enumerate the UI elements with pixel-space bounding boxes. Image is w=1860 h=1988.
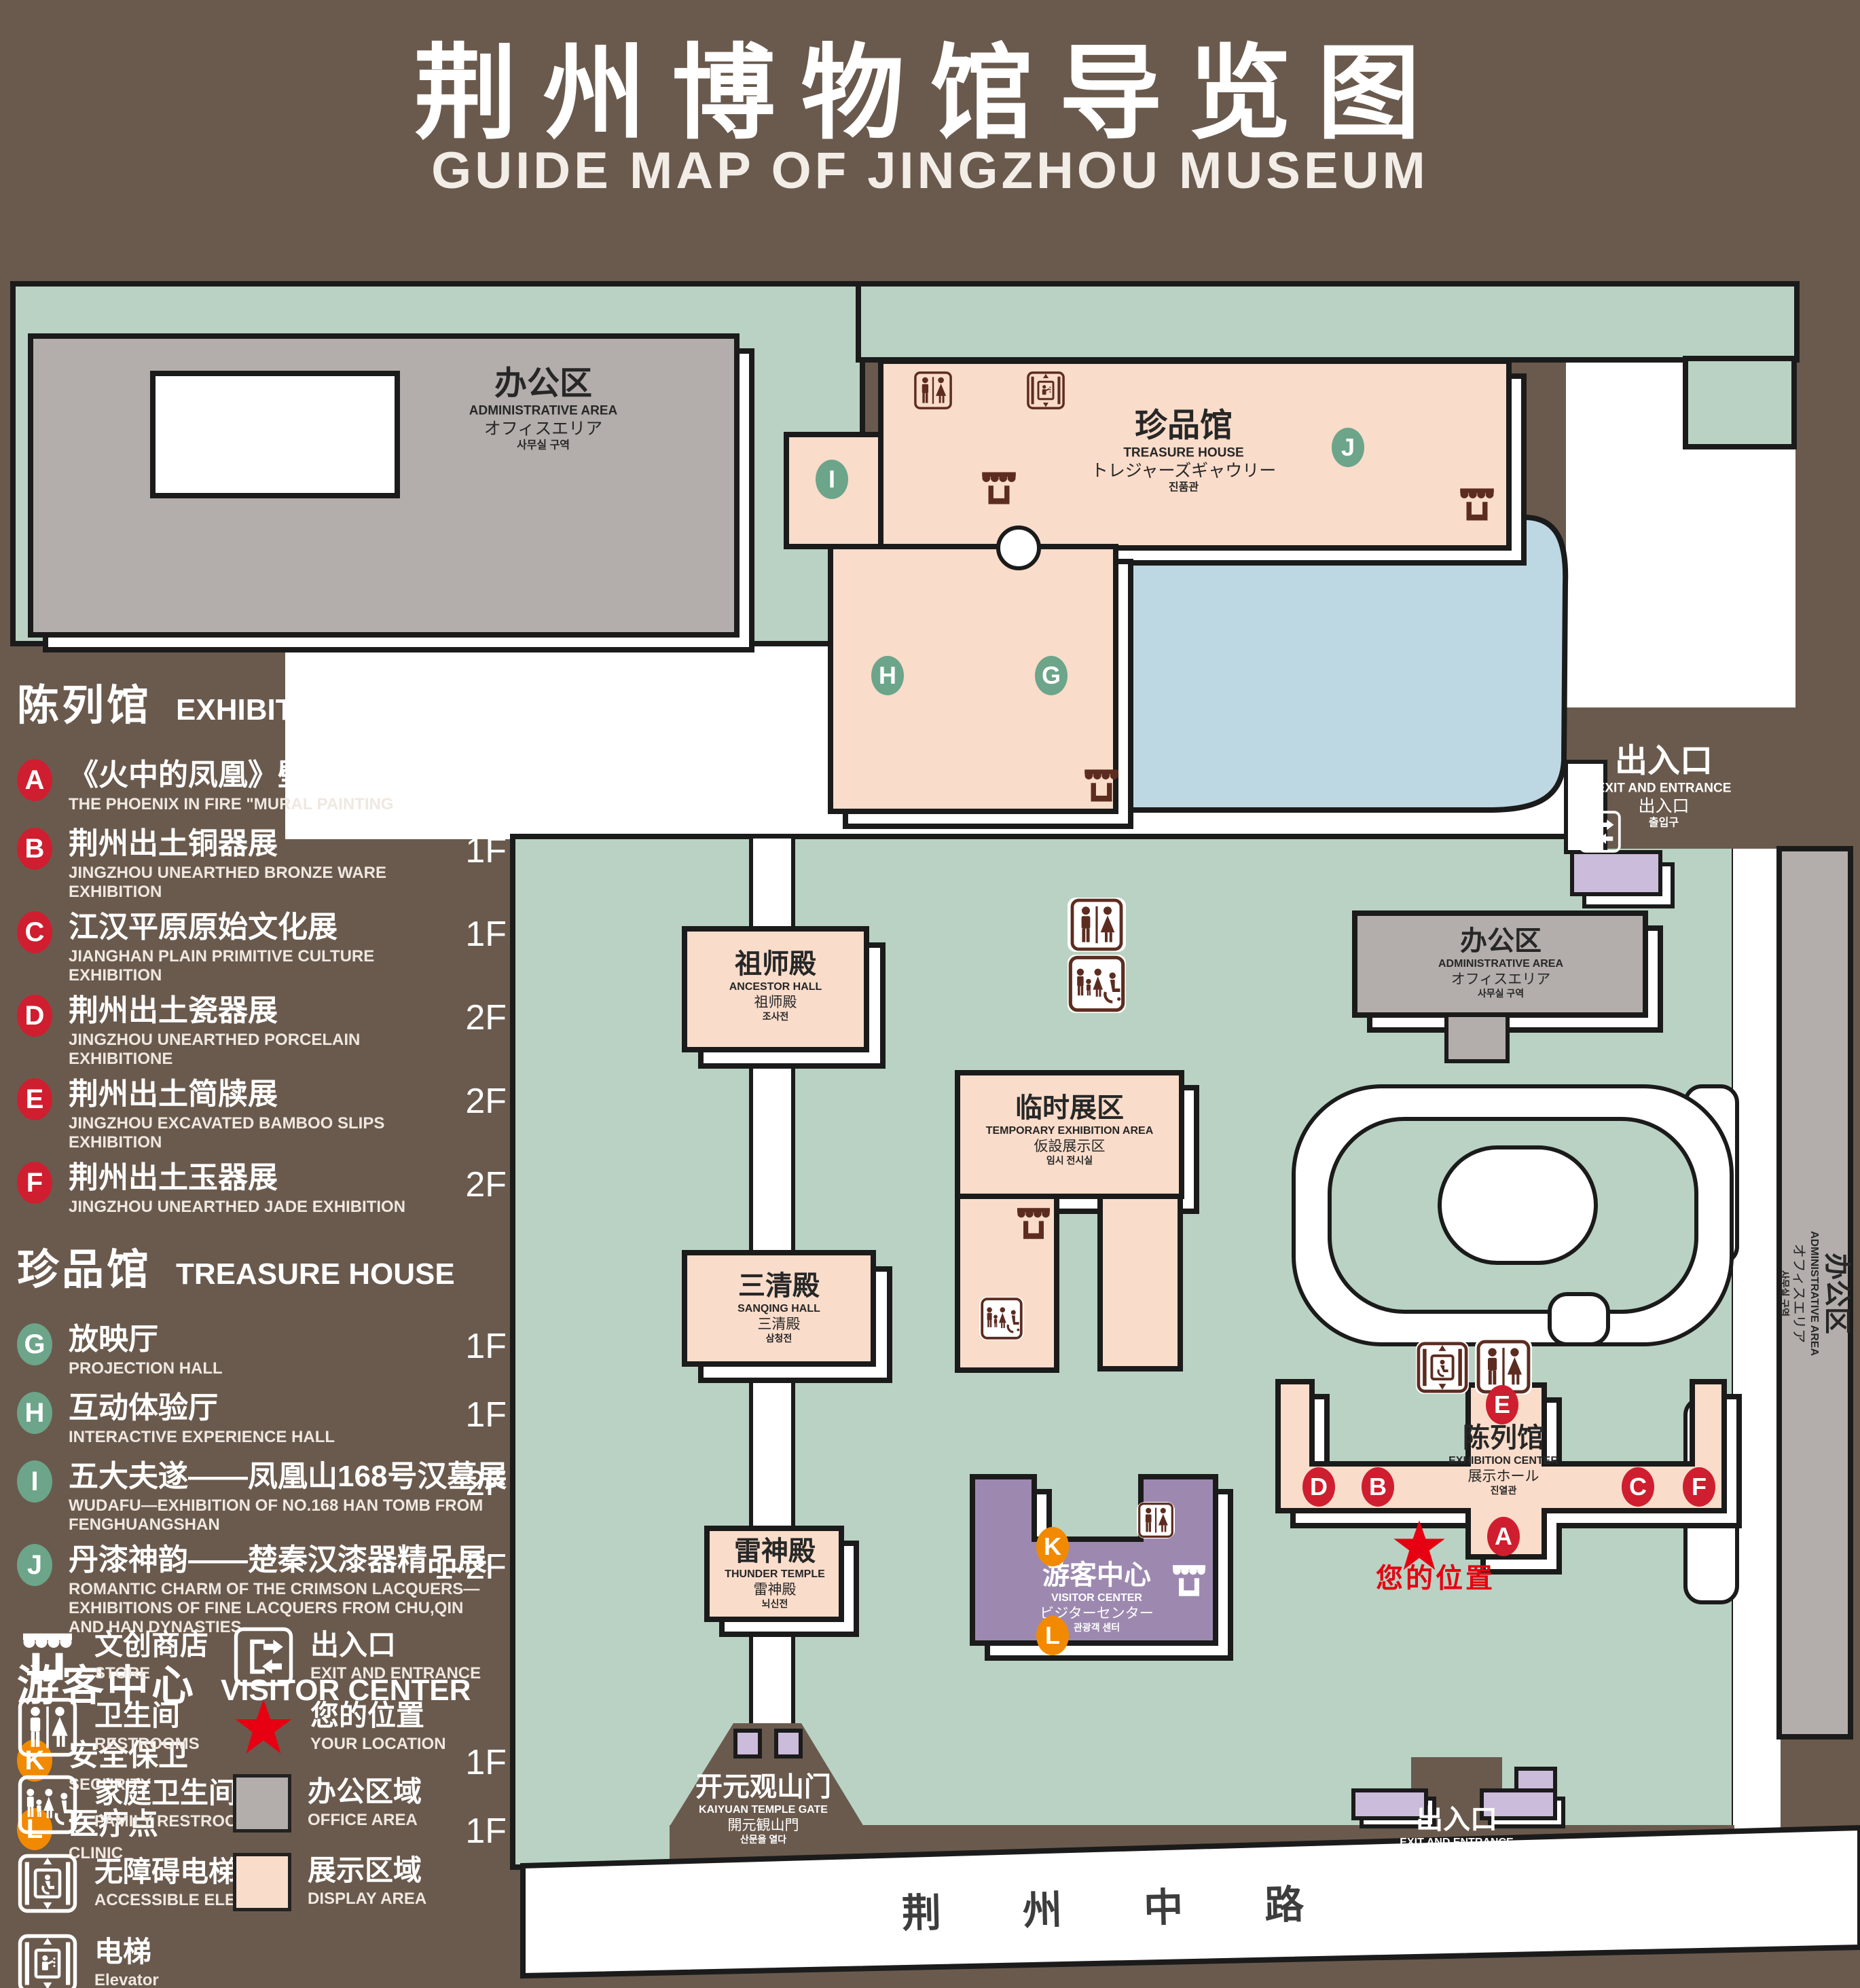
legend-item-floor: 1F [465, 830, 507, 871]
legend-item-text: 放映厅PROJECTION HALL [69, 1322, 223, 1378]
label-zh: 三清殿 [737, 1271, 820, 1302]
legend-section-title-zh: 珍品馆 [17, 1247, 151, 1293]
label-en: SANQING HALL [737, 1303, 820, 1315]
legend-symbol-en: STORE [94, 1664, 208, 1683]
legend-item-en: INTERACTIVE EXPERIENCE HALL [69, 1428, 335, 1447]
legend-symbol-text: 出入口EXIT AND ENTRANCE [310, 1630, 481, 1682]
legend-item-text: 荆州出土玉器展JINGZHOU UNEARTHED JADE EXHIBITIO… [69, 1160, 405, 1217]
legend-symbols: 文创商店STORE卫生间RESTROOMS家庭卫生间FAMILY RESTROO… [17, 1626, 519, 1988]
restroom-icon [913, 371, 953, 410]
map-label-treasure-house: 珍品馆 TREASURE HOUSE トレジャーズギャウリー 진품관 [1091, 407, 1277, 496]
admin-mid-leg [1446, 1015, 1508, 1061]
restroom-icon [1137, 1502, 1175, 1539]
accessible-elevator-icon [17, 1853, 78, 1914]
legend-symbol-zh: 文创商店 [94, 1630, 208, 1660]
label-en: ADMINISTRATIVE AREA [1808, 1231, 1820, 1356]
map-badge-k: K [1036, 1527, 1069, 1566]
legend-item-zh: 互动体验厅 [69, 1391, 335, 1426]
label-en: ADMINISTRATIVE AREA [1438, 958, 1563, 970]
label-ko: 임시 전시실 [986, 1156, 1154, 1166]
legend-item-floor: 1F [465, 762, 507, 803]
legend-symbol-swatch-office: 办公区域OFFICE AREA [233, 1774, 422, 1833]
legend-symbol-en: RESTROOMS [94, 1735, 200, 1754]
map-label-admin-east: 办公区 ADMINISTRATIVE AREA オフィスエリア 사무실 구역 [1777, 1231, 1853, 1356]
legend-section-title-en: EXHIBITION CENTER [176, 693, 478, 726]
garden-pond-small [1440, 1147, 1596, 1263]
label-ja: トレジャーズギャウリー [1091, 462, 1277, 481]
legend-item-zh: 丹漆神韵——楚秦汉漆器精品展 [69, 1543, 487, 1578]
east-road [1733, 847, 1781, 1867]
label-zh: 雷神殿 [725, 1536, 825, 1567]
store-icon [1169, 1560, 1209, 1601]
legend-item: C江汉平原原始文化展JIANGHAN PLAIN PRIMITIVE CULTU… [17, 910, 516, 984]
elevator-icon [1026, 371, 1065, 410]
label-en: EXIT AND ENTRANCE [1597, 781, 1732, 795]
map-badge-g: G [1035, 656, 1068, 695]
legend-item-zh: 江汉平原原始文化展 [69, 910, 440, 945]
label-ko: 진품관 [1091, 482, 1277, 494]
legend-item-text: 《火中的凤凰》壁画THE PHOENIX IN FIRE "MURAL PAIN… [69, 758, 394, 814]
label-ja: 三清殿 [737, 1317, 820, 1333]
legend-item-en: JINGZHOU UNEARTHED BRONZE WARE EXHIBITIO… [69, 864, 440, 901]
label-en: ADMINISTRATIVE AREA [469, 403, 618, 418]
label-ja: オフィスエリア [469, 420, 618, 439]
legend-item-floor: 1F [465, 1395, 507, 1435]
legend-item-badge: A [17, 759, 52, 801]
legend-item-en: THE PHOENIX IN FIRE "MURAL PAINTING [69, 795, 394, 814]
label-en: KAIYUAN TEMPLE GATE [695, 1804, 831, 1816]
legend-item: D荆州出土瓷器展JINGZHOU UNEARTHED PORCELAIN EXH… [17, 993, 516, 1068]
label-zh: 出入口 [1400, 1805, 1513, 1835]
label-ko: 진열관 [1448, 1486, 1558, 1496]
legend-item: H互动体验厅INTERACTIVE EXPERIENCE HALL1F [17, 1391, 516, 1450]
label-zh: 开元观山门 [695, 1772, 831, 1803]
legend-symbol-text: 电梯Elevator [94, 1937, 159, 1988]
legend-item-text: 五大夫遂——凤凰山168号汉墓展WUDAFU—EXHIBITION OF NO.… [69, 1459, 507, 1534]
legend-item-en: PROJECTION HALL [69, 1359, 223, 1378]
label-en: ANCESTOR HALL [729, 981, 822, 993]
legend-symbol-en: DISPLAY AREA [308, 1890, 426, 1909]
map-badge-f: F [1683, 1467, 1715, 1507]
legend-symbol-text: 卫生间RESTROOMS [94, 1701, 200, 1753]
label-ja: 展示ホール [1448, 1469, 1558, 1485]
store-icon [1013, 1203, 1054, 1244]
legend-item-floor: 2F [465, 1081, 507, 1122]
legend-item-zh: 《火中的凤凰》壁画 [69, 758, 394, 793]
office-area-swatch [233, 1774, 291, 1833]
label-ko: 산문을 열다 [695, 1835, 831, 1845]
label-en: THUNDER TEMPLE [725, 1568, 825, 1581]
map-label-temporary-area: 临时展区 TEMPORARY EXHIBITION AREA 仮設展示区 임시 … [986, 1092, 1154, 1168]
legend-symbol-zh: 展示区域 [308, 1856, 426, 1885]
legend-symbol-restroom: 卫生间RESTROOMS [17, 1697, 200, 1758]
legend-section-header: 珍品馆TREASURE HOUSE [17, 1235, 516, 1296]
display-area-swatch [233, 1853, 291, 1911]
map-label-sanqing-hall: 三清殿 SANQING HALL 三清殿 삼청전 [737, 1270, 820, 1346]
legend-section: 陈列馆EXHIBITION CENTERA《火中的凤凰》壁画THE PHOENI… [17, 671, 516, 1220]
legend-item-badge: D [17, 995, 52, 1037]
legend-symbol-zh: 您的位置 [310, 1701, 446, 1731]
label-zh: 临时展区 [986, 1093, 1154, 1124]
gate-building-east [776, 1731, 801, 1756]
legend-item-en: WUDAFU—EXHIBITION OF NO.168 HAN TOMB FRO… [69, 1496, 507, 1534]
legend-section-title-zh: 陈列馆 [17, 682, 151, 729]
legend-symbol-exit: 出入口EXIT AND ENTRANCE [233, 1626, 481, 1687]
legend-item-floor: 1F [465, 1326, 507, 1367]
map-badge-j: J [1332, 428, 1364, 467]
legend-item-text: 江汉平原原始文化展JIANGHAN PLAIN PRIMITIVE CULTUR… [69, 910, 440, 984]
legend-item-floor: 2F [465, 1463, 507, 1504]
map-label-exit-south: 出入口 EXIT AND ENTRANCE 出入口 출입구 [1400, 1803, 1513, 1879]
legend-symbol-text: 文创商店STORE [94, 1630, 208, 1682]
store-icon [1456, 483, 1498, 526]
legend-item-en: JINGZHOU UNEARTHED JADE EXHIBITION [69, 1198, 405, 1217]
label-ja: オフィスエリア [1438, 972, 1563, 988]
legend-item-badge: J [17, 1544, 52, 1586]
legend-item-badge: F [17, 1162, 52, 1204]
legend-symbol-elevator: 电梯Elevator [17, 1933, 159, 1988]
legend-item-zh: 荆州出土玉器展 [69, 1160, 405, 1196]
legend-item-en: JINGZHOU UNEARTHED PORCELAIN EXHIBITIONE [69, 1031, 440, 1068]
label-en: TEMPORARY EXHIBITION AREA [986, 1125, 1154, 1137]
east-exit-building [1572, 852, 1660, 894]
road-name: 荆 州 中 路 [901, 1872, 1340, 1939]
map-label-admin-mid: 办公区 ADMINISTRATIVE AREA オフィスエリア 사무실 구역 [1438, 925, 1563, 1001]
legend-item-text: 荆州出土瓷器展JINGZHOU UNEARTHED PORCELAIN EXHI… [69, 993, 440, 1068]
legend-item-badge: E [17, 1078, 52, 1120]
label-ja: 祖师殿 [729, 995, 822, 1011]
legend-item-zh: 荆州出土铜器展 [69, 826, 440, 862]
map-label-ancestor-hall: 祖师殿 ANCESTOR HALL 祖师殿 조사전 [729, 948, 822, 1024]
legend-symbol-text: 展示区域DISPLAY AREA [308, 1856, 426, 1908]
legend-item-en: JIANGHAN PLAIN PRIMITIVE CULTURE EXHIBIT… [69, 947, 440, 984]
map-label-admin-northwest: 办公区 ADMINISTRATIVE AREA オフィスエリア 사무실 구역 [469, 365, 618, 454]
gate-building-west [735, 1731, 760, 1756]
label-zh: 办公区 [469, 366, 618, 403]
legend-item-text: 荆州出土简牍展JINGZHOU EXCAVATED BAMBOO SLIPS E… [69, 1077, 440, 1152]
legend-item-text: 互动体验厅INTERACTIVE EXPERIENCE HALL [69, 1391, 335, 1447]
family-restroom-icon [1068, 955, 1126, 1013]
map-label-thunder-temple: 雷神殿 THUNDER TEMPLE 雷神殿 뇌신전 [725, 1535, 825, 1611]
exit-icon [233, 1626, 294, 1687]
legend-item-badge: C [17, 911, 52, 953]
treasure-house-round-plaza [998, 528, 1039, 568]
legend-symbol-zh: 电梯 [94, 1937, 159, 1967]
label-ko: 뇌신전 [725, 1599, 825, 1610]
map-label-gate: 开元观山门 KAIYUAN TEMPLE GATE 開元観山門 산문을 열다 [695, 1771, 831, 1847]
legend-item: B荆州出土铜器展JINGZHOU UNEARTHED BRONZE WARE E… [17, 826, 516, 901]
store-icon [1080, 765, 1123, 807]
garden-path-stem [1550, 1294, 1608, 1344]
label-ko: 사무실 구역 [469, 440, 618, 452]
location-star-icon [233, 1697, 294, 1758]
map-badge-e: E [1486, 1385, 1518, 1424]
your-location-label: 您的位置 [1376, 1556, 1495, 1596]
legend-item-floor: 2F [465, 997, 507, 1038]
map-label-exhibition-center: 陈列馆 EXHIBITION CENTER 展示ホール 진열관 [1448, 1422, 1558, 1498]
temporary-area-east-col [1100, 1196, 1180, 1369]
green-area-northeast [1685, 358, 1794, 447]
map-badge-d: D [1302, 1467, 1335, 1507]
store-icon [17, 1626, 78, 1687]
legend-item-floor: 1F [465, 914, 507, 955]
legend-symbol-family-restroom: 家庭卫生间FAMILY RESTROOMS [17, 1774, 262, 1835]
legend-item-en: JINGZHOU EXCAVATED BAMBOO SLIPS EXHIBITI… [69, 1114, 440, 1152]
legend-item-badge: H [17, 1392, 52, 1434]
map-badge-i: I [816, 460, 848, 499]
legend-symbol-en: YOUR LOCATION [310, 1735, 446, 1754]
legend-section: 珍品馆TREASURE HOUSEG放映厅PROJECTION HALL1FH互… [17, 1235, 516, 1636]
label-zh: 办公区 [1438, 926, 1563, 957]
legend-item-floor: 1-2F [434, 1547, 507, 1587]
restroom-icon [1068, 898, 1126, 952]
legend-item: E荆州出土简牍展JINGZHOU EXCAVATED BAMBOO SLIPS … [17, 1077, 516, 1152]
map-badge-h: H [871, 656, 904, 695]
accessible-elevator-icon [1416, 1341, 1469, 1394]
label-en: VISITOR CENTER [1040, 1592, 1154, 1604]
legend-item-badge: I [17, 1460, 52, 1503]
green-band-north [858, 284, 1797, 360]
legend-item-zh: 荆州出土简牍展 [69, 1077, 440, 1112]
label-zh: 珍品馆 [1091, 408, 1277, 445]
label-zh: 祖师殿 [729, 949, 822, 980]
family-restroom-icon [979, 1297, 1024, 1340]
label-ko: 출입구 [1400, 1867, 1513, 1878]
store-icon [978, 467, 1020, 509]
legend-item: G放映厅PROJECTION HALL1F [17, 1322, 516, 1382]
legend-symbol-zh: 办公区域 [308, 1777, 422, 1807]
legend-symbol-text: 办公区域OFFICE AREA [308, 1777, 422, 1829]
legend-symbol-swatch-display: 展示区域DISPLAY AREA [233, 1853, 426, 1911]
south-exit-building-tab [1516, 1769, 1555, 1792]
legend-item: I五大夫遂——凤凰山168号汉墓展WUDAFU—EXHIBITION OF NO… [17, 1459, 516, 1534]
map-badge-b: B [1362, 1467, 1394, 1507]
label-zh: 陈列馆 [1448, 1423, 1558, 1454]
map-badge-c: C [1622, 1467, 1654, 1507]
legend-symbol-store: 文创商店STORE [17, 1626, 208, 1687]
elevator-icon [17, 1933, 78, 1988]
legend-item-zh: 放映厅 [69, 1322, 223, 1357]
family-restroom-icon [17, 1774, 78, 1835]
legend-item-badge: G [17, 1323, 52, 1365]
legend-item-badge: B [17, 828, 52, 870]
legend-symbol-en: EXIT AND ENTRANCE [310, 1664, 481, 1683]
legend-item-floor: 2F [465, 1164, 507, 1205]
legend-symbol-en: Elevator [94, 1971, 159, 1988]
label-ko: 조사전 [729, 1012, 822, 1023]
label-ja: 雷神殿 [725, 1582, 825, 1598]
legend-item-text: 荆州出土铜器展JINGZHOU UNEARTHED BRONZE WARE EX… [69, 826, 440, 901]
label-ja: 出入口 [1400, 1850, 1513, 1866]
exit-icon [1578, 810, 1622, 853]
label-zh: 办公区 [1821, 1231, 1852, 1356]
legend-symbol-text: 您的位置YOUR LOCATION [310, 1701, 446, 1753]
legend-symbol-zh: 出入口 [310, 1630, 481, 1660]
label-ja: オフィスエリア [1791, 1231, 1807, 1356]
label-en: EXIT AND ENTRANCE [1400, 1837, 1513, 1849]
legend-item-zh: 五大夫遂——凤凰山168号汉墓展 [69, 1459, 507, 1494]
label-ko: 사무실 구역 [1779, 1231, 1789, 1356]
label-en: TREASURE HOUSE [1091, 445, 1277, 460]
label-ja: 開元観山門 [695, 1818, 831, 1834]
legend-item-zh: 荆州出土瓷器展 [69, 993, 440, 1029]
legend-item: F荆州出土玉器展JINGZHOU UNEARTHED JADE EXHIBITI… [17, 1160, 516, 1220]
legend-item: A《火中的凤凰》壁画THE PHOENIX IN FIRE "MURAL PAI… [17, 758, 516, 817]
legend-symbol-zh: 卫生间 [94, 1701, 200, 1731]
legend-item-text: 丹漆神韵——楚秦汉漆器精品展ROMANTIC CHARM OF THE CRIM… [69, 1543, 487, 1636]
label-en: EXHIBITION CENTER [1448, 1455, 1558, 1467]
admin-nw-courtyard [153, 373, 397, 496]
legend-item: J丹漆神韵——楚秦汉漆器精品展ROMANTIC CHARM OF THE CRI… [17, 1543, 516, 1636]
legend-section-header: 陈列馆EXHIBITION CENTER [17, 671, 516, 732]
label-ko: 삼청전 [737, 1333, 820, 1344]
guide-map-poster: 荆州博物馆导览图 GUIDE MAP OF JINGZHOU MUSEUM [0, 0, 1860, 1988]
map-badge-a: A [1487, 1517, 1520, 1556]
map-badge-l: L [1036, 1616, 1069, 1655]
restroom-icon [17, 1697, 78, 1758]
legend-section-title-en: TREASURE HOUSE [176, 1257, 455, 1291]
label-zh: 出入口 [1597, 743, 1732, 780]
label-ja: 仮設展示区 [986, 1139, 1154, 1155]
label-ko: 사무실 구역 [1438, 989, 1563, 999]
legend-symbol-en: OFFICE AREA [308, 1811, 422, 1830]
legend-symbol-location-star: 您的位置YOUR LOCATION [233, 1697, 446, 1758]
